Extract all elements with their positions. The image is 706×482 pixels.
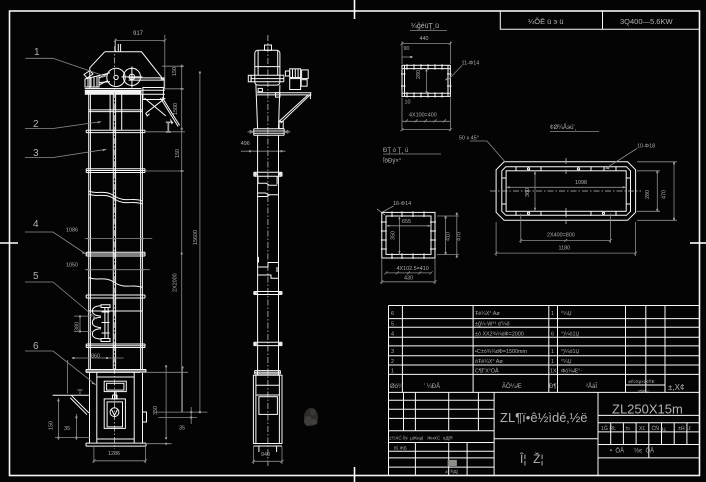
svg-text:4X102.5=410: 4X102.5=410 xyxy=(397,266,429,272)
svg-text:1: 1 xyxy=(551,359,554,365)
svg-text:35: 35 xyxy=(64,426,70,432)
svg-text:•C±ó¾¼dФ=1500mm: •C±ó¾¼dФ=1500mm xyxy=(475,349,527,355)
svg-text:280: 280 xyxy=(416,70,422,79)
svg-text:±Ĥ Ĺť: ±Ĥ Ĺť xyxy=(678,425,691,432)
svg-text:±ó XX2¾¼dФ=2000: ±ó XX2¾¼dФ=2000 xyxy=(475,332,524,338)
svg-text:XĽ: XĽ xyxy=(639,426,645,432)
svg-text:4X100=400: 4X100=400 xyxy=(409,113,437,119)
svg-text:35: 35 xyxy=(179,426,185,432)
svg-text:1050: 1050 xyxy=(66,263,78,269)
svg-text:5: 5 xyxy=(33,271,39,282)
svg-text:470: 470 xyxy=(662,190,668,199)
svg-text:1: 1 xyxy=(391,369,394,375)
svg-text:6: 6 xyxy=(551,332,554,338)
svg-text:150: 150 xyxy=(172,67,178,76)
svg-text:1: 1 xyxy=(551,349,554,355)
svg-text:11-Φ14: 11-Φ14 xyxy=(462,61,480,67)
svg-text:16-Φ14: 16-Φ14 xyxy=(393,201,411,207)
svg-text:±ı: ±ı xyxy=(626,426,630,432)
svg-text:6: 6 xyxy=(33,341,39,352)
svg-text:óŦé¼X° Aø: óŦé¼X° Aø xyxy=(475,359,503,365)
svg-text:440: 440 xyxy=(420,36,429,42)
svg-text:4: 4 xyxy=(391,332,394,338)
svg-text:±½XĆ ĪŅ µЖнµļ ЖнXĆ оДļ®: ±½XĆ ĪŅ µЖнµļ ЖнXĆ оДļ® xyxy=(389,435,453,441)
svg-text:2X400=800: 2X400=800 xyxy=(547,233,575,239)
svg-text:’ ¼ĐÅ: ’ ¼ĐÅ xyxy=(424,383,440,390)
svg-text:10: 10 xyxy=(405,100,411,106)
svg-text:ZL¶ї•ê½ìdé‚½ё: ZL¶ї•ê½ìdé‚½ё xyxy=(500,410,587,425)
svg-text:860: 860 xyxy=(91,354,100,360)
svg-text:6: 6 xyxy=(391,311,394,317)
svg-text:1: 1 xyxy=(551,311,554,317)
svg-text:1086: 1086 xyxy=(66,228,78,234)
svg-text:655: 655 xyxy=(402,219,411,225)
svg-text:±,X¢: ±,X¢ xyxy=(668,383,684,392)
svg-text:²ÅáĪ: ²ÅáĪ xyxy=(586,383,597,390)
svg-text:±Î ®Дļ: ±Î ®Дļ xyxy=(445,468,458,474)
svg-text:1X: 1X xyxy=(550,369,557,375)
svg-text:380: 380 xyxy=(75,322,81,331)
svg-text:280: 280 xyxy=(645,190,651,199)
svg-text:10-Φ18: 10-Φ18 xyxy=(637,144,655,150)
svg-text:Φó¼Æ°·: Φó¼Æ°· xyxy=(561,369,582,375)
svg-text:3: 3 xyxy=(391,349,394,355)
svg-text:ÃŌ¼Æ: ÃŌ¼Æ xyxy=(502,383,522,390)
svg-text:410: 410 xyxy=(446,232,452,241)
svg-text:1: 1 xyxy=(34,47,40,58)
svg-text:4: 4 xyxy=(33,219,39,230)
svg-text:ĆŇ ą¿: ĆŇ ą¿ xyxy=(652,425,667,432)
svg-text:±ŧ½Xµ¼X®E: ±ŧ½Xµ¼X®E xyxy=(628,378,655,384)
svg-text:ĪôĐý×°: ĪôĐý×° xyxy=(383,158,402,165)
svg-text:90: 90 xyxy=(404,46,410,52)
svg-text:¼ÕĒ ü э ü: ¼ÕĒ ü э ü xyxy=(528,17,564,26)
svg-text:2X2000: 2X2000 xyxy=(173,273,179,292)
svg-text:ØΦ¼: ØΦ¼ xyxy=(638,389,651,395)
svg-text:940: 940 xyxy=(261,452,270,458)
svg-text:1Ĝ ŘĿ: 1Ĝ ŘĿ xyxy=(601,424,616,432)
svg-text:¼ĝéüŢ¸ü: ¼ĝéüŢ¸ü xyxy=(411,23,439,30)
svg-text:°¼Ų: °¼Ų xyxy=(561,311,572,317)
svg-text:150: 150 xyxy=(49,421,55,430)
svg-text:350: 350 xyxy=(391,231,397,240)
svg-text:2: 2 xyxy=(391,359,394,365)
svg-text:°)¼ó1Ų: °)¼ó1Ų xyxy=(561,332,579,338)
svg-text:• ŌÅ ½є ŌÅ: • ŌÅ ½є ŌÅ xyxy=(610,448,654,455)
svg-text:496: 496 xyxy=(241,141,250,147)
svg-text:°)¼ó1Ų: °)¼ó1Ų xyxy=(561,349,579,355)
svg-text:1286: 1286 xyxy=(108,451,120,457)
svg-text:5: 5 xyxy=(391,322,394,328)
svg-text:ІБ ЖБ: ІБ ЖБ xyxy=(394,446,407,451)
svg-text:°¼Ų: °¼Ų xyxy=(561,359,572,365)
svg-text:350: 350 xyxy=(153,406,159,415)
svg-text:1180: 1180 xyxy=(559,246,571,252)
svg-text:430: 430 xyxy=(404,276,413,282)
svg-text:Øó¼: Øó¼ xyxy=(390,384,404,390)
svg-text:3Q400—5.6KW: 3Q400—5.6KW xyxy=(620,17,673,26)
svg-text:917: 917 xyxy=(133,31,144,37)
svg-text:1098: 1098 xyxy=(575,180,587,186)
svg-text:ZL250X15m: ZL250X15m xyxy=(612,402,683,417)
svg-text:Đ¶¹: Đ¶¹ xyxy=(549,384,559,390)
svg-text:470: 470 xyxy=(457,232,463,241)
svg-text:15600: 15600 xyxy=(193,230,199,245)
svg-text:C¶Ī”X°ŌÅ: C¶Ī”X°ŌÅ xyxy=(475,368,499,375)
svg-text:ĐŢ ó Ţ¸ ü: ĐŢ ó Ţ¸ ü xyxy=(383,148,408,154)
svg-text:±ĝ¼·W°¹ d’¼ð: ±ĝ¼·W°¹ d’¼ð xyxy=(475,321,509,328)
svg-text:1500: 1500 xyxy=(173,103,179,115)
svg-text:360: 360 xyxy=(525,188,531,197)
svg-text:Ŧé¼X° Aø: Ŧé¼X° Aø xyxy=(475,311,500,317)
svg-text:Î¦ Ž¦: Î¦ Ž¦ xyxy=(519,451,544,466)
svg-text:150: 150 xyxy=(175,149,181,158)
svg-text:¢Ø¼Åэü’¸: ¢Ø¼Åэü’¸ xyxy=(550,124,577,131)
